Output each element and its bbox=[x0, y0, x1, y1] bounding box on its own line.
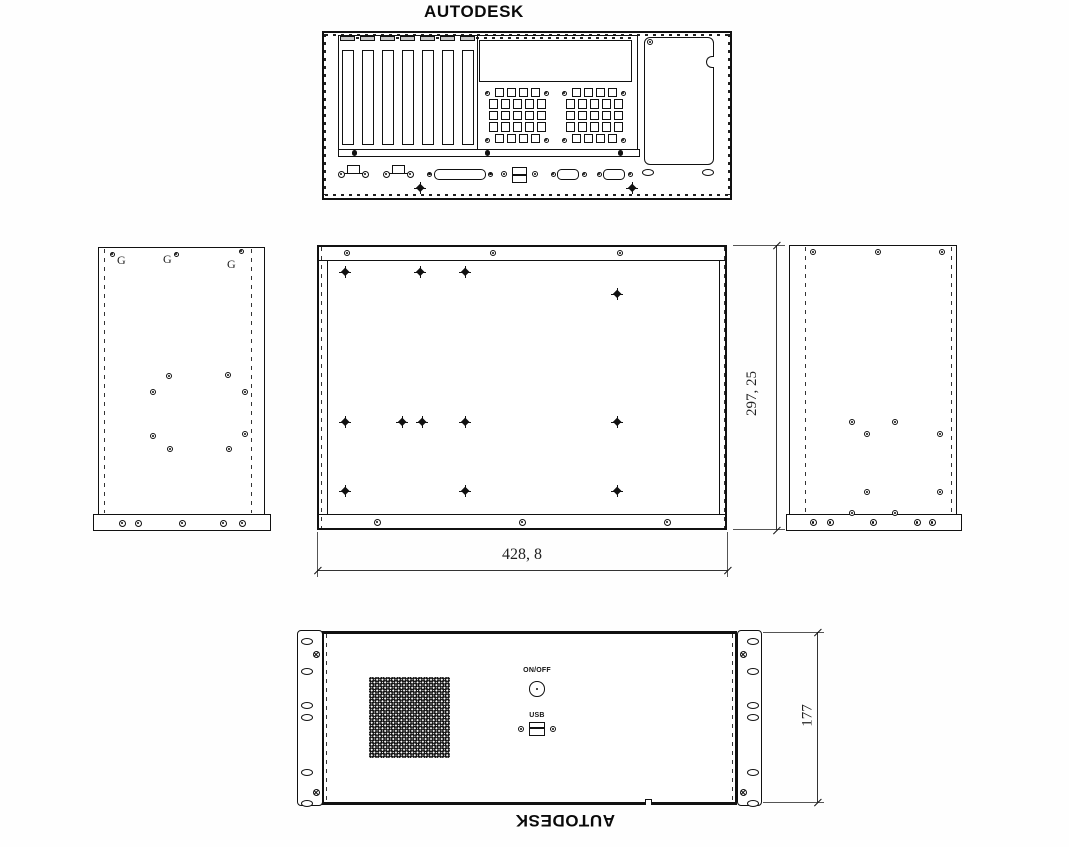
sheet-hatch bbox=[728, 34, 730, 195]
keypad-key bbox=[614, 111, 623, 120]
connector-screw bbox=[488, 172, 493, 177]
keypad-key bbox=[525, 99, 534, 108]
usb-port-rear bbox=[512, 167, 527, 175]
slot-tab bbox=[380, 36, 395, 41]
connector-bracket bbox=[392, 165, 405, 174]
ear-oval-hole bbox=[747, 668, 759, 675]
ear-oval-hole bbox=[747, 769, 759, 776]
keypad-key bbox=[572, 88, 581, 97]
target-mark bbox=[459, 266, 471, 278]
target-mark bbox=[459, 485, 471, 497]
keypad-key bbox=[501, 111, 510, 120]
display-window bbox=[479, 40, 632, 82]
slot-cover bbox=[362, 50, 374, 145]
slot-tab bbox=[440, 36, 455, 41]
ear-screw bbox=[313, 651, 320, 658]
connector-screw bbox=[338, 171, 345, 178]
top-view bbox=[317, 245, 727, 530]
vent-grille bbox=[369, 677, 450, 758]
target-mark bbox=[414, 182, 426, 194]
slot-cover bbox=[462, 50, 474, 145]
slot-cover bbox=[442, 50, 454, 145]
rail-hole bbox=[664, 519, 671, 526]
keypad-key bbox=[489, 122, 498, 131]
mount-hole bbox=[225, 372, 231, 378]
db25-connector bbox=[434, 169, 486, 180]
keypad-key bbox=[596, 88, 605, 97]
keypad-key bbox=[578, 122, 587, 131]
fold-line bbox=[724, 247, 725, 528]
fold-line bbox=[732, 634, 733, 802]
keypad-key bbox=[513, 111, 522, 120]
connector-bracket bbox=[347, 165, 360, 174]
keypad-key bbox=[614, 122, 623, 131]
connector-screw bbox=[551, 172, 556, 177]
technical-drawing-canvas: AUTODESK AUTODESK G G bbox=[0, 0, 1069, 847]
mount-hole bbox=[166, 373, 172, 379]
mount-hole bbox=[892, 419, 898, 425]
inner-wall-line bbox=[719, 261, 720, 515]
dimension-depth-label: 297, 25 bbox=[744, 341, 761, 446]
rail-hole bbox=[617, 250, 623, 256]
keypad-key bbox=[531, 88, 540, 97]
keypad-key bbox=[584, 88, 593, 97]
mount-hole bbox=[226, 446, 232, 452]
target-mark bbox=[416, 416, 428, 428]
usb-screw bbox=[518, 726, 524, 732]
keypad-key bbox=[513, 99, 522, 108]
ground-screw-hole bbox=[110, 252, 115, 257]
psu-cover-plate bbox=[644, 37, 714, 165]
keypad-screw bbox=[621, 91, 626, 96]
dimension-line-depth bbox=[776, 245, 777, 530]
keypad-key bbox=[590, 111, 599, 120]
sheet-hatch bbox=[325, 194, 729, 196]
keypad-key bbox=[489, 99, 498, 108]
keypad-screw bbox=[562, 138, 567, 143]
front-rail-line bbox=[318, 260, 726, 261]
mount-hole bbox=[242, 389, 248, 395]
rail-hole bbox=[119, 520, 126, 527]
keypad-key bbox=[602, 122, 611, 131]
slot-tab bbox=[360, 36, 375, 41]
rail-screw bbox=[352, 150, 358, 156]
keypad-screw bbox=[485, 91, 490, 96]
mount-hole bbox=[849, 510, 855, 516]
mount-hole bbox=[937, 489, 943, 495]
fold-line bbox=[251, 249, 252, 513]
connector-screw bbox=[582, 172, 587, 177]
keypad-key bbox=[566, 99, 575, 108]
inner-wall-line bbox=[327, 261, 328, 515]
keypad-key bbox=[513, 122, 522, 131]
ear-oval-hole bbox=[747, 800, 759, 807]
rail-hole bbox=[929, 519, 936, 526]
keypad-key bbox=[537, 99, 546, 108]
fold-line bbox=[326, 634, 327, 802]
keypad-key bbox=[525, 111, 534, 120]
slot-tab bbox=[340, 36, 355, 41]
ear-screw bbox=[313, 789, 320, 796]
connector-screw bbox=[597, 172, 602, 177]
mount-hole bbox=[167, 446, 173, 452]
slot-tab bbox=[460, 36, 475, 41]
rail-hole bbox=[179, 520, 186, 527]
target-mark bbox=[414, 266, 426, 278]
right-side-view bbox=[789, 245, 957, 515]
keypad-key bbox=[578, 99, 587, 108]
ear-oval-hole bbox=[747, 714, 759, 721]
target-mark bbox=[396, 416, 408, 428]
ear-oval-hole bbox=[301, 800, 313, 807]
ground-label: G bbox=[227, 257, 236, 272]
mount-hole bbox=[864, 431, 870, 437]
keypad-key bbox=[495, 134, 504, 143]
mount-hole bbox=[892, 510, 898, 516]
dimension-line-width bbox=[317, 570, 727, 571]
fold-line bbox=[805, 247, 806, 513]
ear-oval-hole bbox=[301, 714, 313, 721]
keypad-key bbox=[572, 134, 581, 143]
keypad-screw bbox=[544, 91, 549, 96]
connector-screw bbox=[383, 171, 390, 178]
connector-screw bbox=[407, 171, 414, 178]
rail-hole bbox=[135, 520, 142, 527]
ground-screw-hole bbox=[239, 249, 244, 254]
panel-divider-line bbox=[477, 36, 478, 153]
target-mark bbox=[459, 416, 471, 428]
keypad-key bbox=[602, 99, 611, 108]
keypad-key bbox=[602, 111, 611, 120]
keypad-key bbox=[507, 88, 516, 97]
usb-screw bbox=[550, 726, 556, 732]
psu-screw-hole bbox=[647, 39, 653, 45]
rail-hole bbox=[344, 250, 350, 256]
mount-hole bbox=[937, 431, 943, 437]
ear-screw bbox=[740, 651, 747, 658]
keypad-key bbox=[519, 88, 528, 97]
power-button-label: ON/OFF bbox=[518, 667, 556, 674]
ground-screw-hole bbox=[174, 252, 179, 257]
connector-screw bbox=[628, 172, 633, 177]
ear-oval-hole bbox=[301, 702, 313, 709]
fold-line bbox=[951, 247, 952, 513]
autodesk-logo-bottom: AUTODESK bbox=[485, 810, 645, 830]
keypad-key bbox=[489, 111, 498, 120]
dimension-height-label: 177 bbox=[800, 696, 815, 736]
mount-hole bbox=[150, 433, 156, 439]
rail-hole bbox=[870, 519, 877, 526]
rail-hole bbox=[374, 519, 381, 526]
ear-oval-hole bbox=[747, 702, 759, 709]
mount-oval-hole bbox=[702, 169, 714, 176]
power-button bbox=[529, 681, 545, 697]
slot-tab bbox=[420, 36, 435, 41]
mount-hole bbox=[939, 249, 945, 255]
target-mark bbox=[611, 288, 623, 300]
target-mark bbox=[611, 485, 623, 497]
ear-oval-hole bbox=[301, 668, 313, 675]
ear-oval-hole bbox=[747, 638, 759, 645]
keypad-screw bbox=[562, 91, 567, 96]
keypad-key bbox=[501, 122, 510, 131]
connector-screw bbox=[362, 171, 369, 178]
keypad-key bbox=[525, 122, 534, 131]
usb-label: USB bbox=[525, 712, 549, 719]
keypad-screw bbox=[621, 138, 626, 143]
rail-hole bbox=[914, 519, 921, 526]
db9-connector bbox=[603, 169, 625, 180]
rail-hole bbox=[220, 520, 227, 527]
rail-hole bbox=[490, 250, 496, 256]
sheet-hatch bbox=[324, 34, 326, 195]
mount-hole bbox=[875, 249, 881, 255]
keypad-key bbox=[495, 88, 504, 97]
connector-screw bbox=[532, 171, 538, 177]
ear-oval-hole bbox=[301, 638, 313, 645]
mount-hole bbox=[242, 431, 248, 437]
keypad-key bbox=[537, 122, 546, 131]
keypad-key bbox=[590, 99, 599, 108]
rail-hole bbox=[810, 519, 817, 526]
keypad-key bbox=[519, 134, 528, 143]
slot-tab bbox=[400, 36, 415, 41]
ground-label: G bbox=[163, 252, 172, 267]
left-side-view bbox=[98, 247, 265, 515]
usb-port-front bbox=[529, 728, 545, 736]
keypad-key bbox=[608, 88, 617, 97]
dimension-line-height bbox=[817, 632, 818, 802]
keypad-key bbox=[566, 122, 575, 131]
keypad-key bbox=[584, 134, 593, 143]
ear-screw bbox=[740, 789, 747, 796]
keypad-key bbox=[531, 134, 540, 143]
fold-line bbox=[321, 247, 322, 528]
psu-plate-notch bbox=[706, 56, 714, 68]
keypad-key bbox=[501, 99, 510, 108]
keypad-key bbox=[578, 111, 587, 120]
keypad-key bbox=[614, 99, 623, 108]
connector-screw bbox=[501, 171, 507, 177]
mount-hole bbox=[150, 389, 156, 395]
mount-oval-hole bbox=[642, 169, 654, 176]
keypad-screw bbox=[485, 138, 490, 143]
mount-hole bbox=[810, 249, 816, 255]
target-mark bbox=[339, 266, 351, 278]
rail-screw bbox=[485, 150, 491, 156]
ear-oval-hole bbox=[301, 769, 313, 776]
keypad-screw bbox=[544, 138, 549, 143]
mount-hole bbox=[849, 419, 855, 425]
extension-line bbox=[763, 632, 824, 633]
rail-hole bbox=[519, 519, 526, 526]
target-mark bbox=[626, 182, 638, 194]
rail-hole bbox=[827, 519, 834, 526]
extension-line bbox=[763, 802, 824, 803]
rail-hole bbox=[239, 520, 246, 527]
panel-notch bbox=[645, 799, 652, 805]
keypad-key bbox=[590, 122, 599, 131]
slot-cover bbox=[422, 50, 434, 145]
keypad-key bbox=[537, 111, 546, 120]
target-mark bbox=[339, 485, 351, 497]
autodesk-logo-top: AUTODESK bbox=[394, 2, 554, 22]
connector-screw bbox=[427, 172, 432, 177]
fold-line bbox=[104, 249, 105, 513]
slot-cover bbox=[342, 50, 354, 145]
keypad-key bbox=[596, 134, 605, 143]
keypad-key bbox=[507, 134, 516, 143]
rail-screw bbox=[618, 150, 624, 156]
keypad-key bbox=[608, 134, 617, 143]
rear-rail-line bbox=[318, 514, 726, 515]
keypad-key bbox=[566, 111, 575, 120]
db9-connector bbox=[557, 169, 579, 180]
ground-label: G bbox=[117, 253, 126, 268]
slot-cover bbox=[382, 50, 394, 145]
usb-port-rear bbox=[512, 175, 527, 183]
target-mark bbox=[611, 416, 623, 428]
target-mark bbox=[339, 416, 351, 428]
mount-hole bbox=[864, 489, 870, 495]
dimension-width-label: 428, 8 bbox=[472, 546, 572, 564]
slot-cover bbox=[402, 50, 414, 145]
